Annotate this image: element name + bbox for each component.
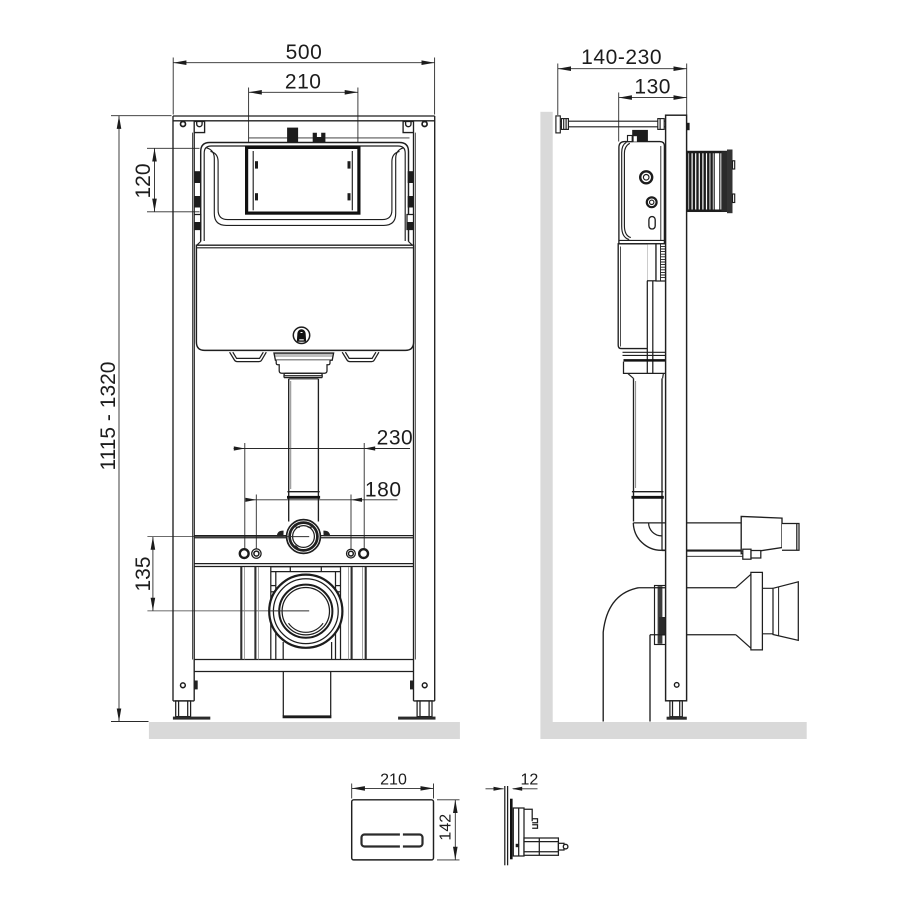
svg-text:500: 500: [286, 41, 323, 64]
svg-text:180: 180: [365, 478, 402, 501]
svg-text:142: 142: [437, 814, 454, 841]
svg-text:120: 120: [132, 163, 155, 198]
svg-text:12: 12: [521, 771, 539, 788]
svg-text:1115 - 1320: 1115 - 1320: [97, 362, 120, 471]
svg-text:135: 135: [132, 556, 155, 591]
svg-text:210: 210: [380, 771, 407, 788]
svg-text:140-230: 140-230: [581, 46, 662, 69]
svg-text:210: 210: [285, 71, 322, 94]
svg-text:130: 130: [634, 75, 671, 98]
svg-text:230: 230: [377, 427, 414, 450]
